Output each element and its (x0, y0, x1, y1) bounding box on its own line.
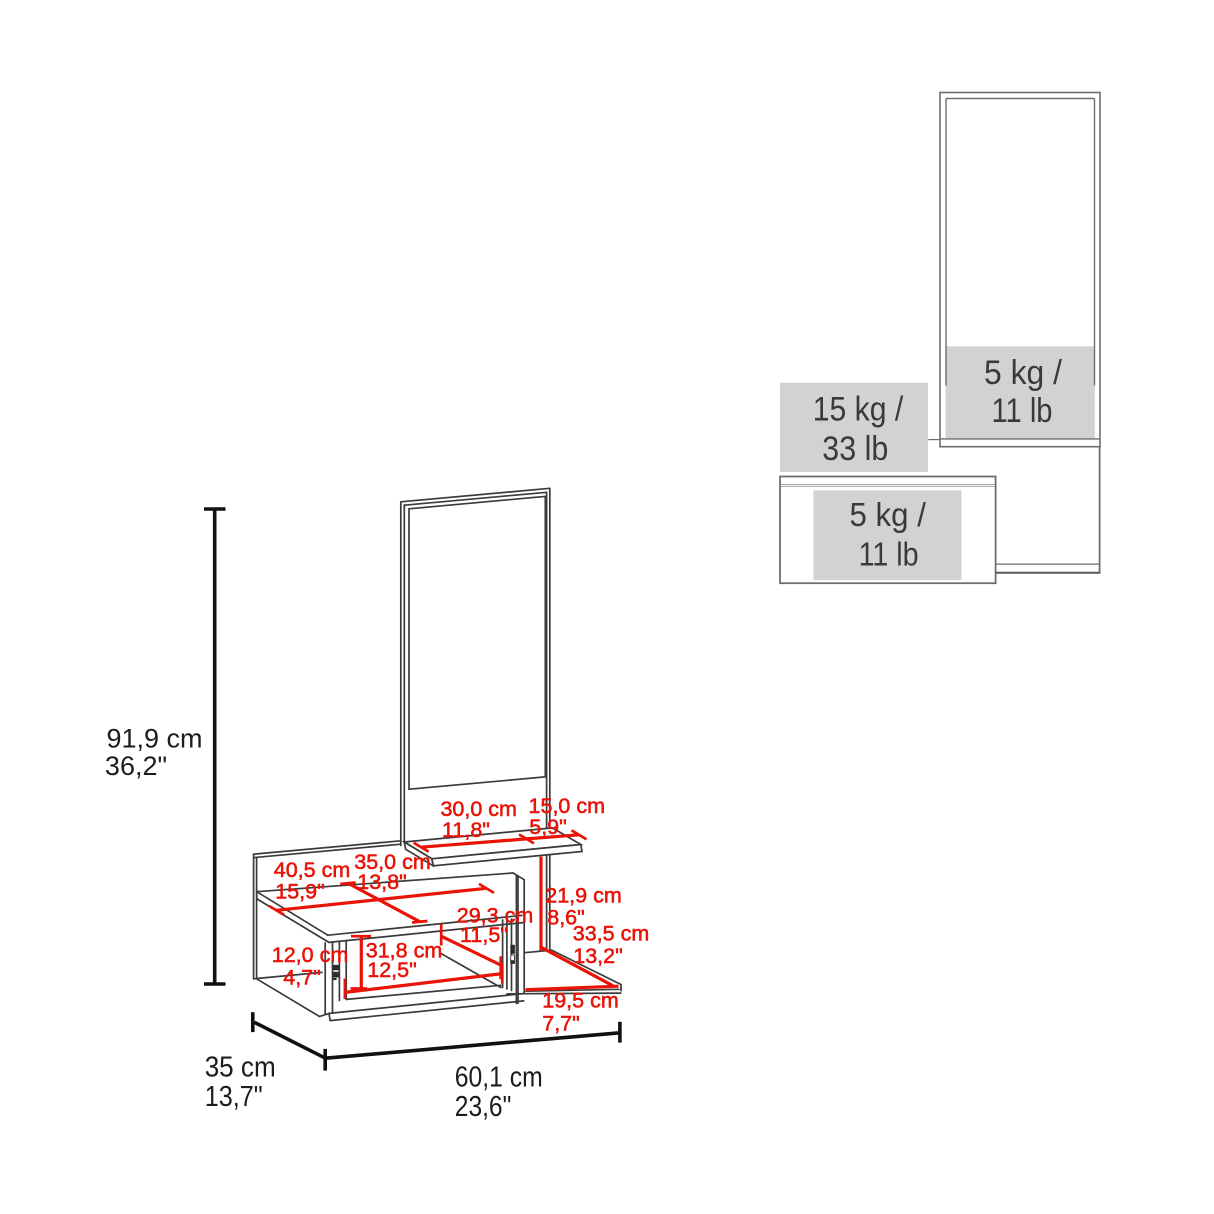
svg-text:36,2": 36,2" (105, 751, 167, 781)
svg-text:7,7": 7,7" (542, 1012, 580, 1036)
svg-text:5 kg /: 5 kg / (984, 354, 1063, 392)
svg-text:12,5": 12,5" (367, 958, 416, 982)
svg-text:33 lb: 33 lb (822, 430, 888, 468)
svg-text:21,9 cm: 21,9 cm (545, 883, 621, 907)
svg-text:5 kg /: 5 kg / (849, 496, 926, 533)
svg-text:15 kg /: 15 kg / (813, 390, 904, 428)
svg-text:12,0 cm: 12,0 cm (272, 943, 348, 967)
svg-text:33,5 cm: 33,5 cm (573, 922, 649, 946)
svg-text:60,1 cm: 60,1 cm (455, 1062, 543, 1094)
svg-text:19,5 cm: 19,5 cm (542, 989, 618, 1013)
svg-text:40,5 cm: 40,5 cm (274, 858, 350, 882)
svg-text:11,5": 11,5" (460, 923, 508, 947)
svg-text:5,9": 5,9" (529, 815, 567, 839)
svg-text:15,9": 15,9" (275, 880, 324, 904)
svg-text:13,8": 13,8" (357, 870, 406, 894)
svg-text:13,2": 13,2" (573, 944, 622, 968)
svg-text:91,9 cm: 91,9 cm (106, 724, 202, 754)
svg-text:11 lb: 11 lb (859, 536, 919, 573)
svg-text:13,7": 13,7" (205, 1081, 263, 1113)
svg-text:35 cm: 35 cm (205, 1052, 276, 1084)
svg-text:4,7": 4,7" (283, 966, 321, 990)
svg-text:11 lb: 11 lb (992, 392, 1053, 430)
svg-text:23,6": 23,6" (455, 1091, 512, 1123)
svg-text:11,8": 11,8" (442, 818, 490, 842)
